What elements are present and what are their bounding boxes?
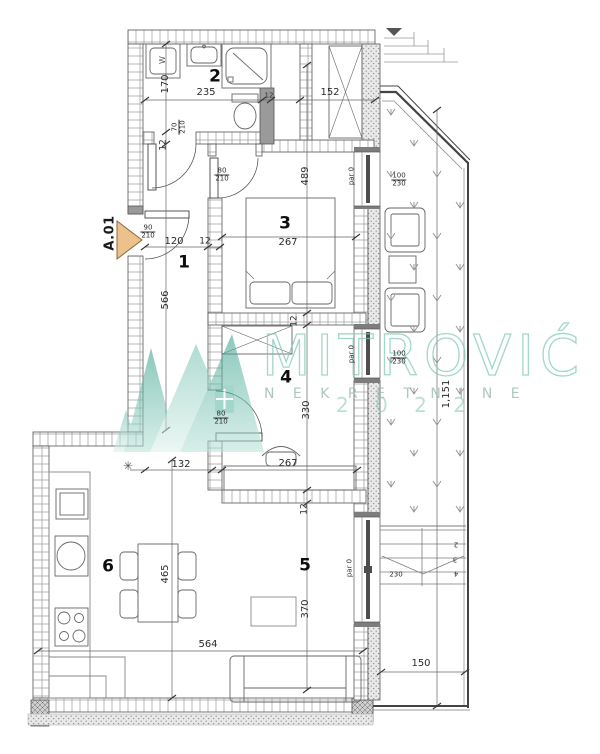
room-label-5: 5 <box>299 558 311 575</box>
dim-370: 370 <box>301 599 311 618</box>
dim-170: 170 <box>161 74 171 93</box>
dim-12-entry: 12 <box>199 238 210 247</box>
cooktop <box>55 608 88 646</box>
dim-window-2: 100230 <box>391 343 406 366</box>
dim-12-bath: 12 <box>160 139 169 150</box>
window-bedroom <box>354 152 380 206</box>
dining-table <box>120 544 196 622</box>
room-label-2: 2 <box>209 69 221 86</box>
dim-235: 235 <box>196 88 215 98</box>
dim-12-top: 12 <box>265 93 274 100</box>
room-label-4: 4 <box>280 370 292 387</box>
watermark-year: 2 0 2 2 <box>336 393 476 417</box>
dim-1151: 1,151 <box>442 380 452 409</box>
dim-entry-door: 90210 <box>140 217 155 240</box>
dim-120: 120 <box>164 237 183 247</box>
terrace-side-table <box>389 256 416 283</box>
sofa <box>230 656 361 702</box>
coffee-table <box>251 597 296 626</box>
dim-230: 230 <box>389 572 402 579</box>
dim-window-1: 100230 <box>391 165 406 188</box>
dim-267-bedroom: 267 <box>278 238 297 248</box>
terrace-edge-strip <box>28 714 373 725</box>
dim-150: 150 <box>411 659 430 669</box>
floor-plan-drawing: MITROVIĆ N E K R E T N I N E 2 0 2 2 <box>0 0 600 754</box>
dim-152: 152 <box>320 88 339 98</box>
bathroom-door <box>148 144 196 190</box>
room-label-6: 6 <box>102 559 114 576</box>
dim-330: 330 <box>302 400 312 419</box>
desk <box>224 466 356 490</box>
dim-465: 465 <box>161 564 171 583</box>
light-symbol: ✳ <box>123 460 133 472</box>
entrance-arrow-icon <box>117 221 142 259</box>
dim-par0-2: par 0 <box>349 345 356 363</box>
dim-par0-3: par 0 <box>347 559 354 577</box>
unit-label: A.01 <box>104 215 117 250</box>
dim-12-b: 12 <box>301 503 310 514</box>
dim-566: 566 <box>161 290 171 309</box>
toilet <box>232 94 258 129</box>
stair-step-4: 4 <box>454 570 458 577</box>
watermark-brand: MITROVIĆ <box>262 324 585 389</box>
dim-par0-1: par 0 <box>349 167 356 185</box>
room-label-3: 3 <box>279 216 291 233</box>
dim-489: 489 <box>301 166 311 185</box>
dim-12-a: 12 <box>291 315 300 326</box>
dim-267-room4: 267 <box>278 459 297 469</box>
washer-label: W <box>159 56 167 64</box>
dim-bath-door: 70210 <box>164 119 187 134</box>
stair-step-3: 3 <box>453 556 457 563</box>
dim-bedroom-door: 80210 <box>214 160 229 183</box>
window-living-terrace-door <box>354 517 380 622</box>
dim-564: 564 <box>198 640 217 650</box>
dim-room4-door: 80210 <box>213 403 228 426</box>
shower <box>222 44 271 88</box>
kitchen-oven <box>56 489 88 519</box>
dim-132: 132 <box>171 460 190 470</box>
terrace-armchair-1 <box>385 208 425 252</box>
room-label-1: 1 <box>178 255 190 272</box>
stair-step-2: 2 <box>454 541 458 548</box>
bathroom-sink <box>187 44 221 66</box>
kitchen-sink <box>55 536 88 576</box>
neighbor-structure <box>384 28 458 62</box>
floor-plan: MITROVIĆ N E K R E T N I N E 2 0 2 2 A.0… <box>0 0 600 754</box>
